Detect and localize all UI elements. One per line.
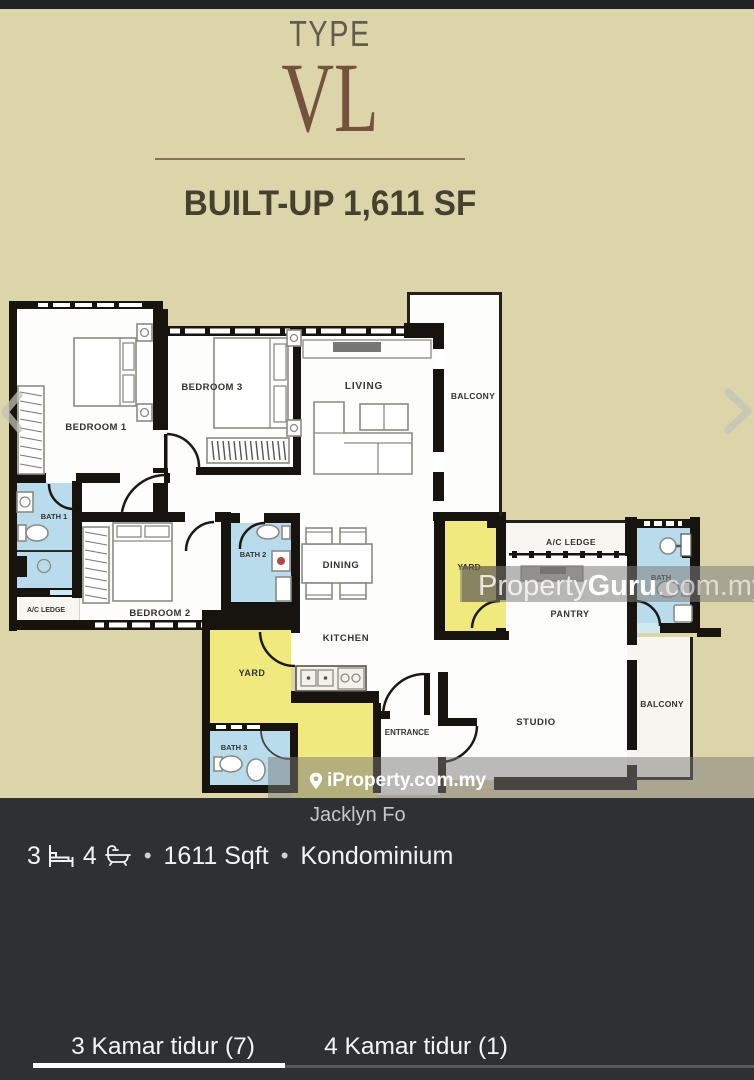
svg-text:BEDROOM 2: BEDROOM 2: [129, 608, 190, 619]
svg-text:DINING: DINING: [323, 560, 360, 571]
svg-text:BALCONY: BALCONY: [451, 391, 495, 401]
svg-text:BATH 1: BATH 1: [41, 512, 68, 521]
svg-text:BATH 2: BATH 2: [240, 550, 267, 559]
svg-text:BALCONY: BALCONY: [640, 699, 684, 709]
svg-text:A/C LEDGE: A/C LEDGE: [546, 537, 596, 547]
svg-text:YARD: YARD: [239, 668, 266, 678]
svg-text:PANTRY: PANTRY: [551, 609, 590, 619]
svg-text:LIVING: LIVING: [345, 381, 383, 392]
svg-text:STUDIO: STUDIO: [516, 717, 556, 728]
svg-text:KITCHEN: KITCHEN: [323, 633, 369, 644]
svg-text:A/C LEDGE: A/C LEDGE: [27, 607, 65, 614]
svg-text:BATH 3: BATH 3: [221, 743, 248, 752]
svg-text:BEDROOM 3: BEDROOM 3: [181, 382, 242, 393]
svg-text:ENTRANCE: ENTRANCE: [385, 728, 430, 737]
svg-text:BEDROOM 1: BEDROOM 1: [65, 422, 126, 433]
